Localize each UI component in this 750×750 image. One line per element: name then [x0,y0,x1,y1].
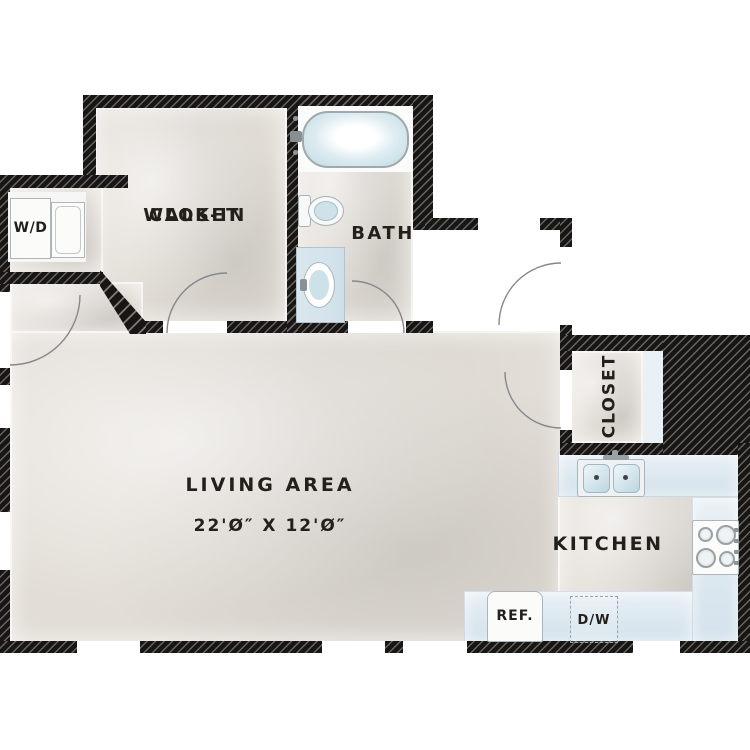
wall [0,428,10,512]
bathtub [302,111,409,168]
stove-burner-icon [698,527,713,542]
window [322,641,385,653]
bath-sink-faucet-icon [300,279,307,291]
wall [680,641,750,653]
door-opening-walk-in-closet [163,321,227,333]
closet-label: CLOSET [572,350,647,442]
window [0,512,10,570]
dryer-door-icon [55,206,81,254]
walk-in-closet-label-line2: CLOSET [149,204,241,227]
refrigerator-label: REF. [488,606,542,626]
wall [0,272,103,284]
kitchen-faucet-icon [612,450,618,460]
kitchen-label: KITCHEN [540,532,676,556]
wall [413,95,433,230]
wall [425,218,478,230]
wall [560,218,572,247]
door-swing-arc [499,263,561,325]
stove-knob-icon [734,539,739,543]
wall [143,321,163,333]
window [478,218,540,230]
stove-knob-icon [734,528,739,532]
sink-drain-icon [594,475,599,480]
wall [738,443,750,653]
door-opening-entry-left [0,292,10,368]
floor-plan: WALK-IN CLOSET BATH LIVING AREA 22'Ø″ X … [0,0,750,750]
bath-sink-basin [309,270,329,300]
window [77,641,140,653]
tub-faucet-icon [290,131,302,142]
sink-drain-icon [623,475,628,480]
tub-knob-icon [293,150,298,155]
wall [406,321,433,333]
wall [385,641,403,653]
tub-knob-icon [293,116,298,121]
wall [0,368,10,385]
living-area-dimensions: 22'Ø″ X 12'Ø″ [150,514,390,538]
stove-knob-icon [734,561,739,565]
window [403,641,467,653]
entry-nook-floor [10,282,143,335]
stove-burner-icon [719,551,735,567]
wall [0,175,128,188]
wall-corner-block [663,335,750,455]
closet-label-text: CLOSET [600,354,620,439]
walk-in-closet-label: WALK-IN CLOSET [110,194,280,238]
door-opening-bath [348,321,406,333]
wall [140,641,322,653]
window [633,641,680,653]
bath-label: BATH [338,221,428,245]
washer-dryer-label: W/D [11,218,50,238]
stove-burner-icon [696,548,716,568]
living-area-label: LIVING AREA [150,472,390,498]
stove-knob-icon [734,550,739,554]
door-opening-entry-right [560,247,572,325]
wall [0,641,77,653]
door-opening-closet [560,370,572,430]
window [0,385,10,428]
dishwasher-label: D/W [571,610,617,630]
stove-burner-icon [716,525,736,545]
toilet-seat [314,201,338,221]
